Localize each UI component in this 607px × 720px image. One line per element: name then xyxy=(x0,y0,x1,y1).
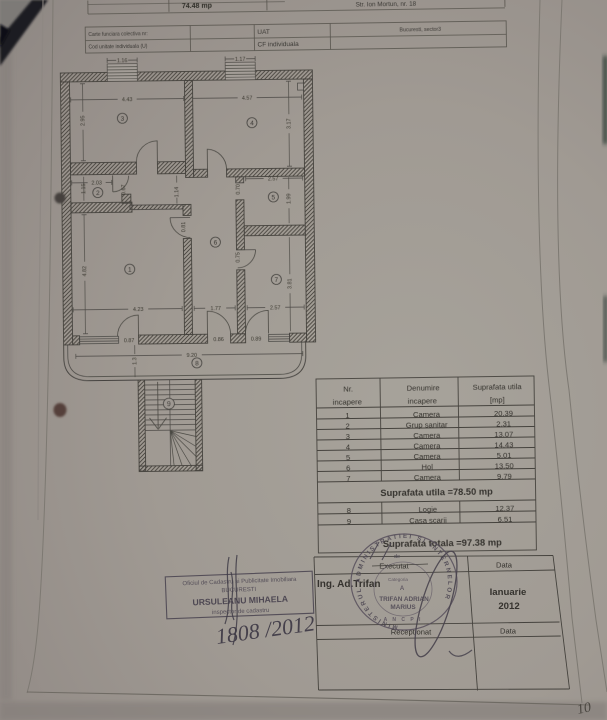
svg-text:2: 2 xyxy=(345,422,349,431)
svg-text:Categoria: Categoria xyxy=(388,577,408,582)
svg-text:9.79: 9.79 xyxy=(497,472,512,481)
svg-text:Suprafata utila =78.50 mp: Suprafata utila =78.50 mp xyxy=(380,487,493,499)
svg-text:2012: 2012 xyxy=(498,601,519,612)
svg-text:incapere: incapere xyxy=(333,397,362,406)
svg-text:14.43: 14.43 xyxy=(494,440,513,449)
svg-text:1.3: 1.3 xyxy=(132,357,138,365)
svg-text:0.75: 0.75 xyxy=(235,252,241,263)
svg-text:1.99: 1.99 xyxy=(286,193,292,204)
svg-text:8: 8 xyxy=(347,506,351,515)
svg-text:12.37: 12.37 xyxy=(495,504,514,513)
svg-text:1.15: 1.15 xyxy=(81,183,87,194)
svg-text:Logie: Logie xyxy=(418,505,437,514)
svg-text:[mp]: [mp] xyxy=(490,395,505,404)
svg-text:Camera: Camera xyxy=(413,410,441,419)
svg-text:1.16: 1.16 xyxy=(117,58,128,64)
svg-text:2.31: 2.31 xyxy=(496,419,511,428)
svg-text:de: de xyxy=(394,554,400,560)
svg-text:0.86: 0.86 xyxy=(213,337,224,343)
svg-text:0.67: 0.67 xyxy=(121,184,127,195)
svg-text:7: 7 xyxy=(275,277,279,284)
svg-text:2: 2 xyxy=(96,190,100,197)
svg-text:Ing. Ad.Trifan: Ing. Ad.Trifan xyxy=(317,579,381,590)
svg-text:MARIUS: MARIUS xyxy=(390,604,416,611)
svg-text:2.03: 2.03 xyxy=(91,181,102,187)
svg-text:0.87: 0.87 xyxy=(124,338,135,344)
svg-text:4: 4 xyxy=(250,120,254,127)
svg-text:Grup sanitar: Grup sanitar xyxy=(406,420,448,430)
svg-text:Casa scarii: Casa scarii xyxy=(409,516,447,526)
svg-text:2.57: 2.57 xyxy=(270,306,281,312)
svg-text:Camera: Camera xyxy=(414,452,442,461)
svg-text:Ianuarie: Ianuarie xyxy=(490,587,527,598)
svg-text:0.70: 0.70 xyxy=(236,184,242,195)
svg-text:incapere: incapere xyxy=(408,396,437,405)
svg-text:1.17: 1.17 xyxy=(235,57,246,63)
svg-text:9: 9 xyxy=(347,517,351,526)
svg-text:0.89: 0.89 xyxy=(251,336,262,342)
svg-text:Camera: Camera xyxy=(414,473,442,482)
svg-text:3.81: 3.81 xyxy=(287,278,293,289)
svg-text:Suprafata utila: Suprafata utila xyxy=(473,382,523,392)
svg-text:4.43: 4.43 xyxy=(122,97,133,103)
svg-text:4.23: 4.23 xyxy=(133,307,144,313)
svg-text:5.01: 5.01 xyxy=(497,451,512,460)
svg-text:5: 5 xyxy=(346,453,350,462)
svg-text:9.20: 9.20 xyxy=(187,353,198,359)
svg-text:20.39: 20.39 xyxy=(494,409,513,418)
svg-text:6: 6 xyxy=(346,464,350,473)
svg-text:2.57: 2.57 xyxy=(268,177,279,183)
svg-text:Nr.: Nr. xyxy=(343,384,353,393)
svg-text:Data: Data xyxy=(500,627,517,636)
svg-text:13.50: 13.50 xyxy=(495,461,514,470)
svg-text:6.51: 6.51 xyxy=(498,515,513,524)
svg-text:3: 3 xyxy=(346,432,350,441)
svg-text:7: 7 xyxy=(346,474,350,483)
svg-text:9: 9 xyxy=(167,401,171,408)
svg-text:3.17: 3.17 xyxy=(287,118,293,129)
svg-text:4.57: 4.57 xyxy=(242,96,253,102)
svg-text:1.14: 1.14 xyxy=(174,187,180,198)
svg-text:Cod unitate individuala (U): Cod unitate individuala (U) xyxy=(88,44,147,51)
svg-text:CF individuala: CF individuala xyxy=(257,41,299,49)
svg-text:4.82: 4.82 xyxy=(82,266,88,277)
svg-text:Str. Ion Mortun, nr. 18: Str. Ion Mortun, nr. 18 xyxy=(356,1,417,9)
svg-text:0.81: 0.81 xyxy=(181,222,187,233)
svg-text:1.77: 1.77 xyxy=(210,306,221,312)
svg-text:2.95: 2.95 xyxy=(81,115,87,126)
svg-text:Hol: Hol xyxy=(421,462,433,471)
svg-text:74.48 mp: 74.48 mp xyxy=(182,3,212,10)
svg-text:3: 3 xyxy=(121,116,125,123)
svg-text:5: 5 xyxy=(272,194,276,201)
svg-text:Carte funciara colectiva nr:: Carte funciara colectiva nr: xyxy=(88,31,148,38)
svg-text:4: 4 xyxy=(346,443,350,452)
svg-text:6: 6 xyxy=(214,240,218,247)
svg-text:13.07: 13.07 xyxy=(494,430,513,439)
svg-text:1: 1 xyxy=(345,411,349,420)
svg-text:Denumire: Denumire xyxy=(407,383,440,392)
svg-text:Bucuresti, sector3: Bucuresti, sector3 xyxy=(399,27,441,34)
svg-text:8: 8 xyxy=(195,360,199,367)
svg-text:Camera: Camera xyxy=(413,441,441,450)
svg-text:A: A xyxy=(400,586,405,592)
svg-text:UAT: UAT xyxy=(257,29,270,36)
svg-text:1: 1 xyxy=(128,267,132,274)
svg-text:Camera: Camera xyxy=(413,431,441,440)
svg-text:Data: Data xyxy=(496,561,513,570)
